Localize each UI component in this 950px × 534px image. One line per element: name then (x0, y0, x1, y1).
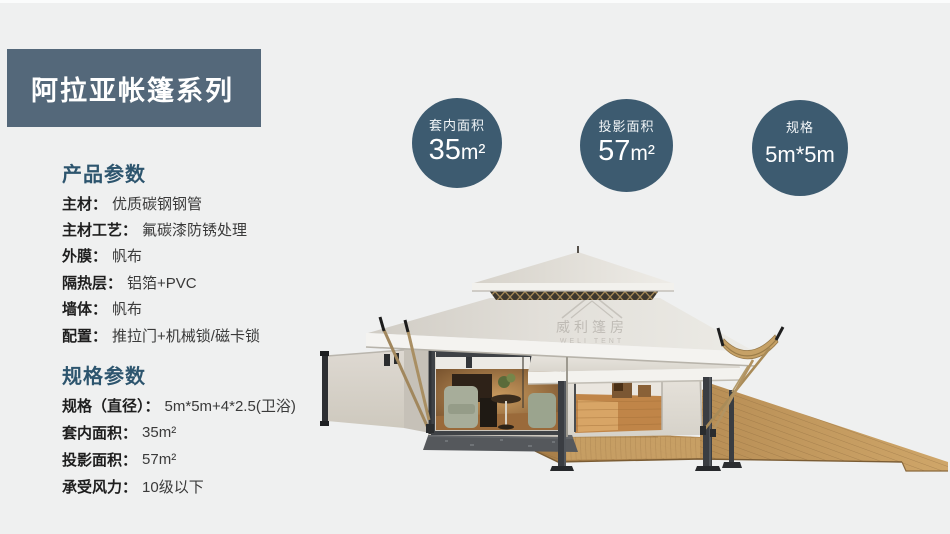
spec-params-list: 规格（直径）：5m*5m+4*2.5(卫浴) 套内面积：35m² 投影面积：57… (62, 392, 296, 500)
tent-roof-cap (472, 246, 674, 291)
badge-label: 套内面积 (412, 115, 502, 134)
param-value: 铝箔+PVC (127, 272, 197, 293)
param-label: 投影面积： (62, 449, 137, 470)
top-strip (0, 0, 950, 3)
param-value: 帆布 (112, 245, 142, 266)
badge-size: 规格 5m*5m (752, 100, 848, 196)
param-label: 主材工艺： (62, 219, 137, 240)
tent-illustration: 威利篷房 WELI TENT (320, 240, 950, 534)
param-label: 配置： (62, 325, 107, 346)
param-row: 投影面积：57m² (62, 446, 296, 473)
param-value: 5m*5m+4*2.5(卫浴) (165, 395, 296, 416)
param-row: 主材：优质碳钢钢管 (62, 190, 260, 216)
series-title-banner: 阿拉亚帐篷系列 (7, 49, 261, 127)
series-title: 阿拉亚帐篷系列 (7, 69, 234, 108)
param-value: 57m² (142, 451, 176, 468)
badge-inner-area: 套内面积 35m² (412, 98, 502, 188)
param-label: 外膜： (62, 245, 107, 266)
badge-label: 规格 (752, 117, 848, 136)
param-row: 墙体：帆布 (62, 296, 260, 322)
param-value: 帆布 (112, 298, 142, 319)
param-row: 规格（直径）：5m*5m+4*2.5(卫浴) (62, 392, 296, 419)
param-row: 主材工艺：氟碳漆防锈处理 (62, 216, 260, 242)
param-label: 承受风力： (62, 476, 137, 497)
badge-value: 5m*5m (752, 143, 848, 167)
param-value: 10级以下 (142, 476, 204, 497)
param-label: 规格（直径）： (62, 395, 160, 416)
param-row: 套内面积：35m² (62, 419, 296, 446)
badge-projection-area: 投影面积 57m² (580, 99, 673, 192)
tent-chair-small (638, 385, 651, 397)
svg-text:威利篷房: 威利篷房 (556, 319, 628, 335)
param-row: 隔热层：铝箔+PVC (62, 269, 260, 295)
badge-value: 57m² (580, 136, 673, 168)
param-value: 氟碳漆防锈处理 (142, 219, 247, 240)
param-value: 推拉门+机械锁/磁卡锁 (112, 325, 260, 346)
param-row: 承受风力：10级以下 (62, 473, 296, 500)
product-params-heading: 产品参数 (62, 158, 146, 187)
param-label: 墙体： (62, 298, 107, 319)
param-label: 隔热层： (62, 272, 122, 293)
tent-armchair-right (528, 393, 556, 428)
spec-params-heading: 规格参数 (62, 360, 146, 389)
param-value: 35m² (142, 424, 176, 441)
param-value: 优质碳钢钢管 (112, 193, 202, 214)
param-label: 主材： (62, 193, 107, 214)
param-row: 配置：推拉门+机械锁/磁卡锁 (62, 322, 260, 348)
badge-label: 投影面积 (580, 116, 673, 135)
param-label: 套内面积： (62, 422, 137, 443)
product-params-list: 主材：优质碳钢钢管 主材工艺：氟碳漆防锈处理 外膜：帆布 隔热层：铝箔+PVC … (62, 190, 260, 348)
param-row: 外膜：帆布 (62, 243, 260, 269)
screen-pole (322, 354, 328, 424)
page: 阿拉亚帐篷系列 产品参数 主材：优质碳钢钢管 主材工艺：氟碳漆防锈处理 外膜：帆… (0, 0, 950, 534)
badge-value: 35m² (412, 135, 502, 167)
